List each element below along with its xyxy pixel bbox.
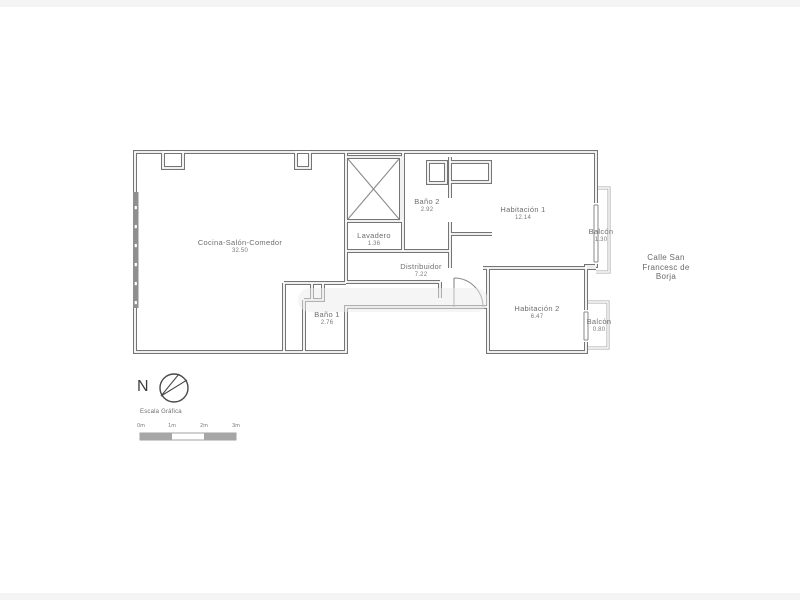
left-facade-window [133, 192, 139, 308]
room-label-balcon-1: Balcón 1.30 [589, 227, 614, 245]
street-line-1: Calle San [642, 253, 689, 263]
room-name: Cocina-Salón-Comedor [198, 238, 282, 247]
north-label: N [137, 378, 149, 396]
room-name: Balcón [589, 227, 614, 236]
room-name: Balcón [587, 317, 612, 326]
room-name: Habitación 1 [500, 205, 545, 214]
room-label-balcon-2: Balcón 0.80 [587, 317, 612, 335]
room-area: 1.30 [589, 236, 614, 245]
room-area: 7.22 [400, 271, 442, 280]
scale-tick-2m: 2m [200, 423, 208, 429]
scale-tick-3m: 3m [232, 423, 240, 429]
room-label-bano-1: Baño 1 2.76 [314, 310, 340, 328]
room-name: Baño 1 [314, 310, 340, 319]
room-area: 1.36 [357, 240, 391, 249]
street-label: Calle San Francesc de Borja [642, 253, 689, 282]
room-label-cocina-salon-comedor: Cocina-Salón-Comedor 32.50 [198, 238, 282, 256]
room-area: 32.50 [198, 247, 282, 256]
scale-bar [140, 433, 236, 440]
room-area: 2.92 [414, 206, 440, 215]
room-label-habitacion-1: Habitación 1 12.14 [500, 205, 545, 223]
room-area: 0.80 [587, 326, 612, 335]
room-area: 2.76 [314, 319, 340, 328]
street-line-3: Borja [642, 272, 689, 282]
watermark [298, 288, 488, 312]
compass-icon [160, 374, 188, 402]
room-label-bano-2: Baño 2 2.92 [414, 197, 440, 215]
room-name: Distribuidor [400, 262, 442, 271]
room-name: Lavadero [357, 231, 391, 240]
scale-title: Escala Gráfica [140, 409, 182, 415]
room-label-distribuidor: Distribuidor 7.22 [400, 262, 442, 280]
room-area: 6.47 [514, 313, 559, 322]
room-name: Habitación 2 [514, 304, 559, 313]
scale-tick-1m: 1m [168, 423, 176, 429]
scale-tick-0m: 0m [137, 423, 145, 429]
street-line-2: Francesc de [642, 263, 689, 273]
room-name: Baño 2 [414, 197, 440, 206]
room-area: 12.14 [500, 214, 545, 223]
room-label-lavadero: Lavadero 1.36 [357, 231, 391, 249]
room-label-habitacion-2: Habitación 2 6.47 [514, 304, 559, 322]
